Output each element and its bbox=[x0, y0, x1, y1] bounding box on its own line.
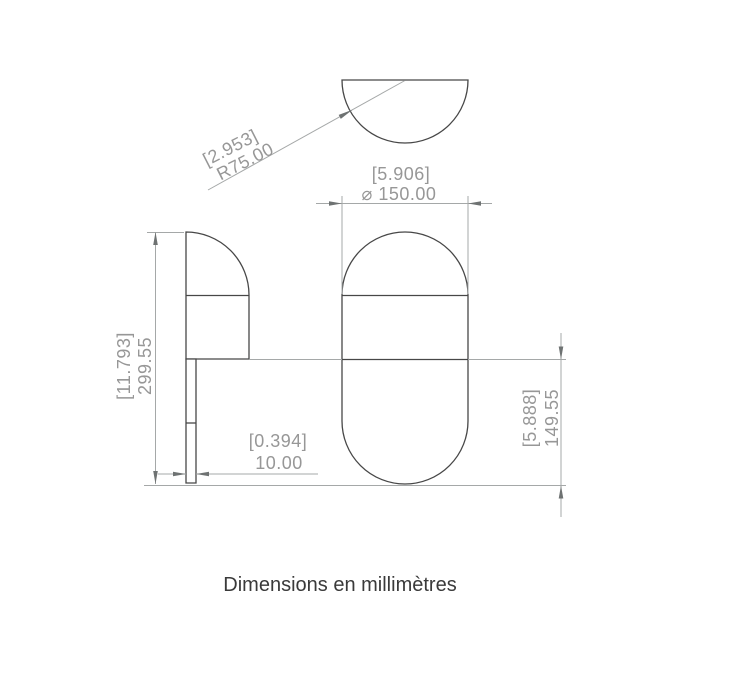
height-arrow-bottom bbox=[153, 471, 158, 484]
technical-drawing: [2.953] R75.00 [5.906] ⌀ 150.00 [11.793]… bbox=[0, 0, 744, 678]
lower-height-value-label: 149.55 bbox=[542, 389, 562, 447]
height-arrow-top bbox=[153, 232, 158, 245]
height-alt-label: [11.793] bbox=[114, 332, 134, 400]
lower-height-alt-label: [5.888] bbox=[520, 389, 540, 448]
lower-height-arrow-top bbox=[559, 347, 564, 360]
diameter-arrow-right bbox=[468, 201, 481, 206]
diameter-alt-label: [5.906] bbox=[372, 164, 431, 184]
height-value-label: 299.55 bbox=[135, 337, 155, 395]
dimension-labels: [2.953] R75.00 [5.906] ⌀ 150.00 [11.793]… bbox=[114, 122, 562, 473]
drawing-canvas: [2.953] R75.00 [5.906] ⌀ 150.00 [11.793]… bbox=[0, 0, 744, 678]
stem-width-arrow-left bbox=[173, 472, 186, 477]
lower-height-arrow-bottom bbox=[559, 486, 564, 499]
side-view-stem bbox=[186, 359, 196, 483]
front-view-capsule bbox=[342, 232, 468, 484]
stem-width-arrow-right bbox=[196, 472, 209, 477]
radius-label-group: [2.953] R75.00 bbox=[200, 122, 277, 187]
drawing-caption: Dimensions en millimètres bbox=[223, 574, 456, 596]
top-view-semicircle bbox=[342, 80, 468, 143]
stem-width-value-label: 10.00 bbox=[255, 453, 303, 473]
diameter-value-label: ⌀ 150.00 bbox=[362, 184, 437, 204]
radius-leader-arrow bbox=[339, 110, 353, 119]
diameter-arrow-left bbox=[329, 201, 342, 206]
stem-width-alt-label: [0.394] bbox=[249, 431, 308, 451]
